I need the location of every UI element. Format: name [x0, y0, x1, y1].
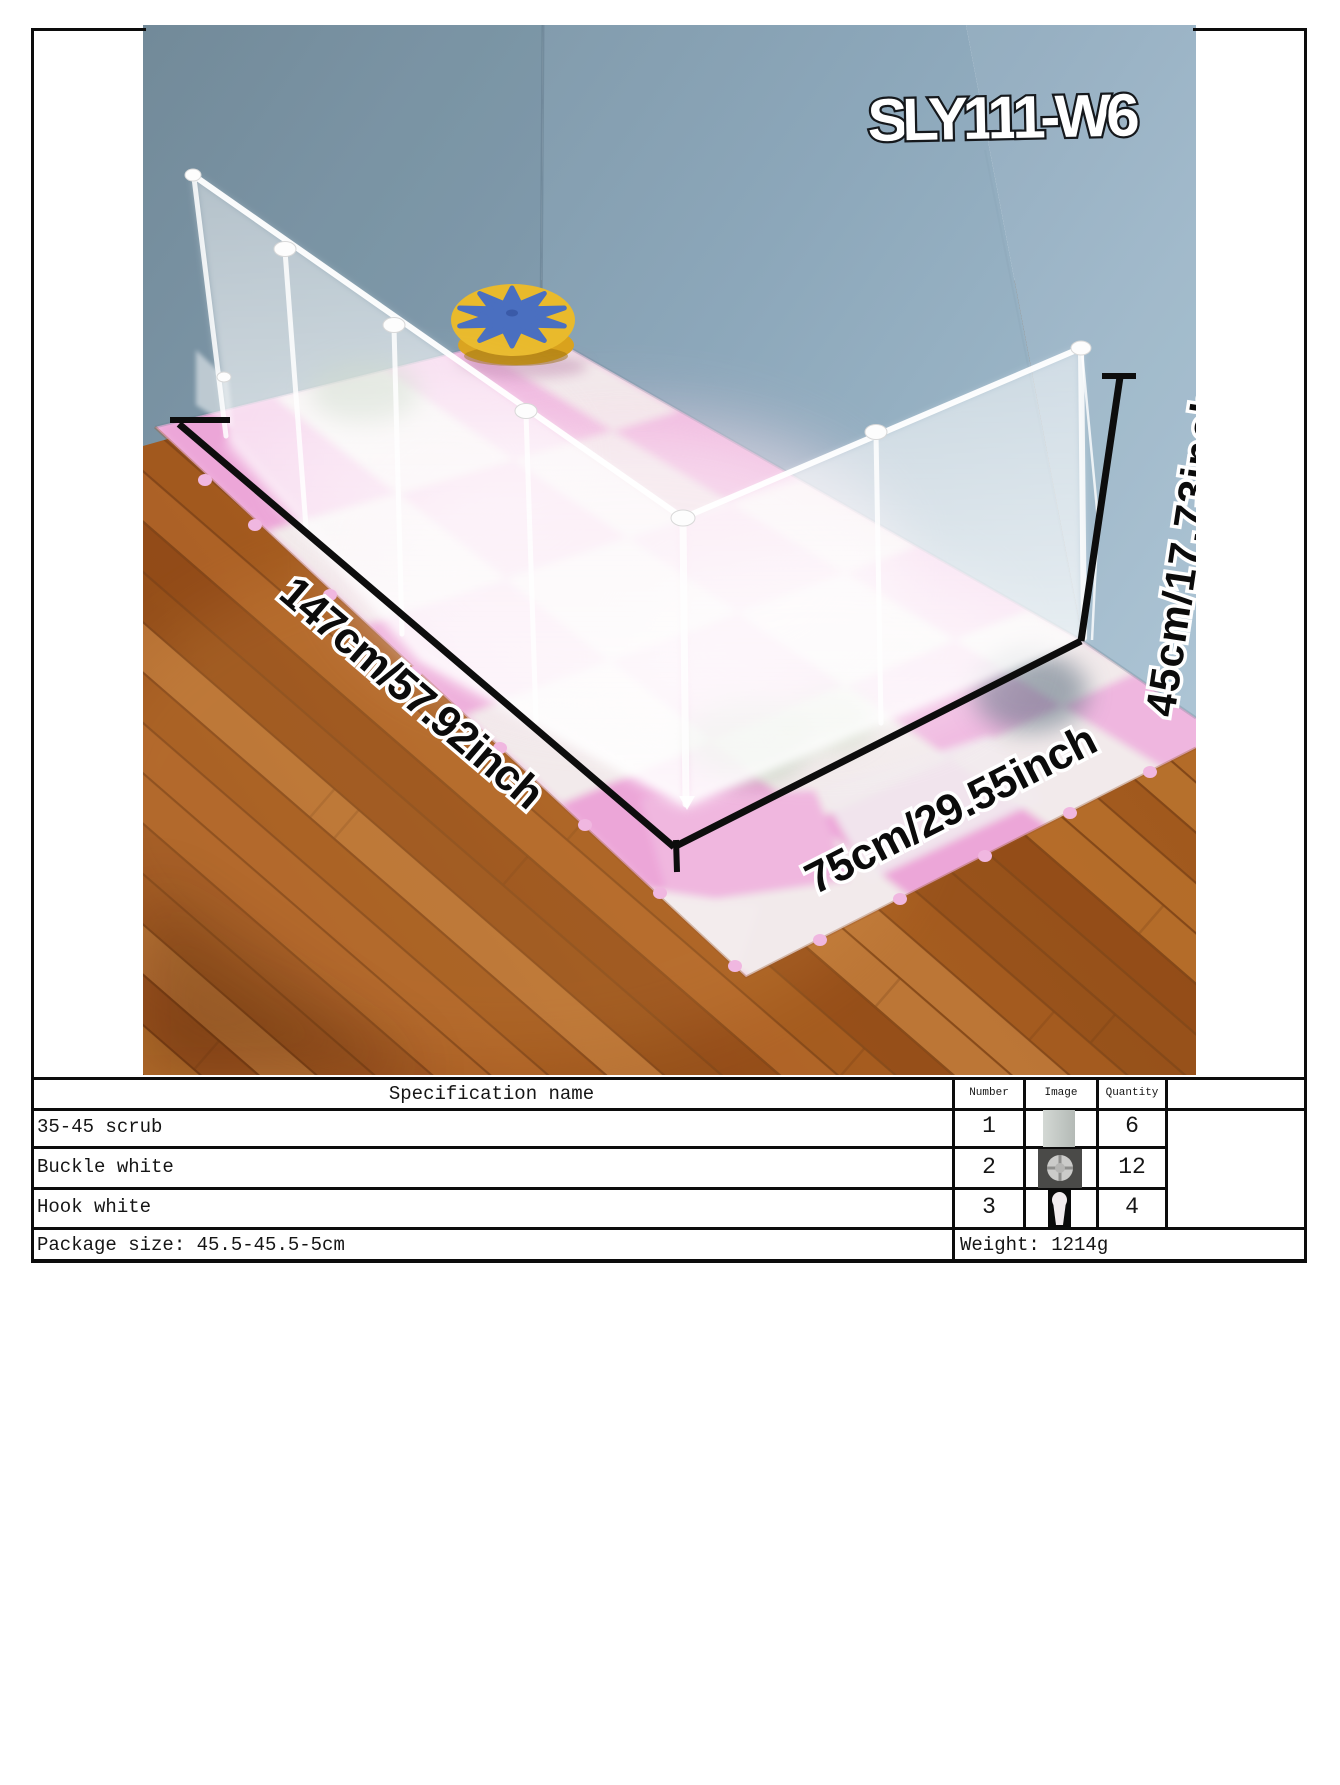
svg-text:SLY111-W6: SLY111-W6	[867, 81, 1140, 154]
